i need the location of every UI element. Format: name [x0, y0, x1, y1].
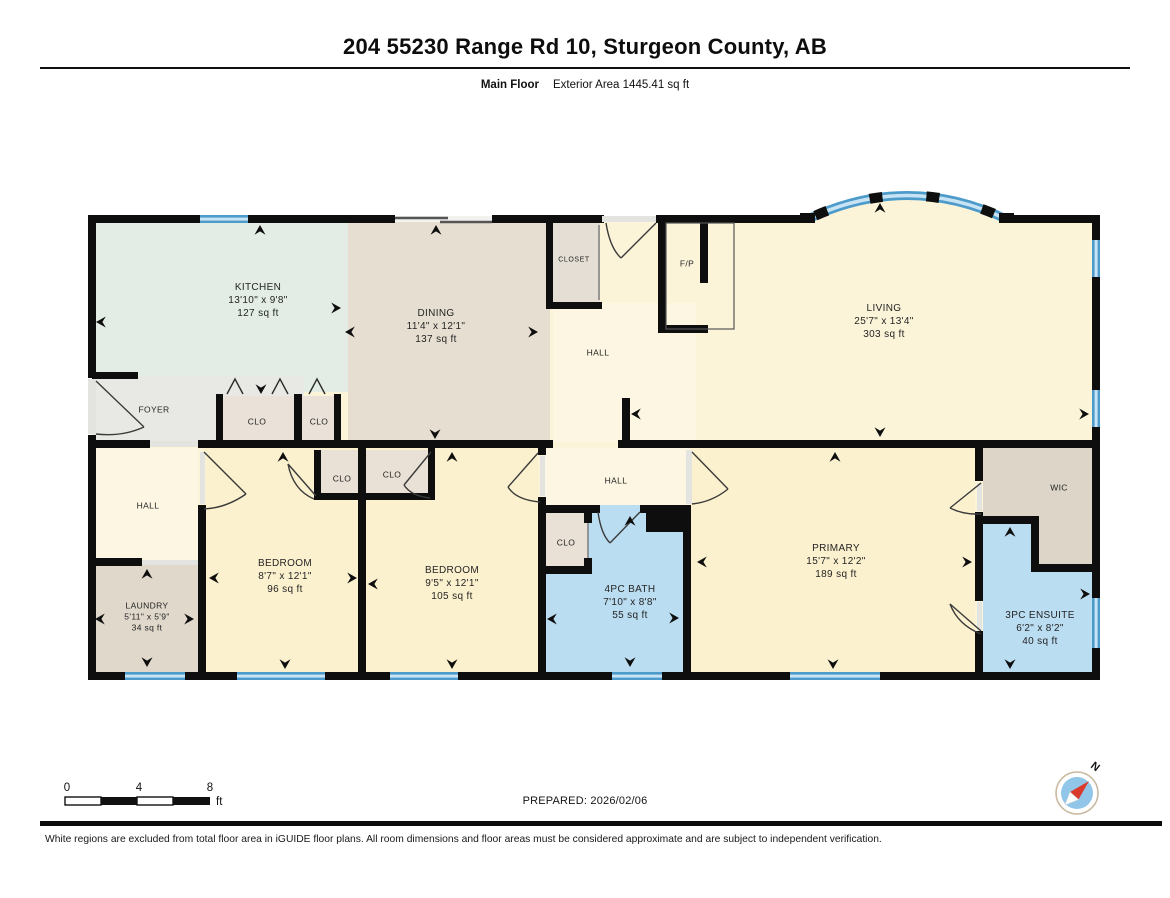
room-label-wic: WIC	[1050, 483, 1068, 494]
room-label-clo-foyer2: CLO	[310, 417, 329, 428]
room-label-foyer: FOYER	[138, 405, 169, 416]
room-label-living: LIVING25'7" x 13'4"303 sq ft	[854, 303, 913, 341]
room-label-closet: CLOSET	[558, 257, 590, 266]
disclaimer-text: White regions are excluded from total fl…	[45, 834, 882, 845]
prepared-date: PREPARED: 2026/02/06	[0, 795, 1170, 807]
scale-tick-4: 4	[136, 782, 142, 794]
room-label-clo-bed1: CLO	[333, 474, 352, 485]
room-label-bath: 4PC BATH7'10" x 8'8"55 sq ft	[603, 584, 656, 622]
room-label-laundry: LAUNDRY5'11" x 5'9"34 sq ft	[124, 601, 169, 634]
room-label-hall-upper: HALL	[587, 348, 610, 359]
room-label-bedroom2: BEDROOM9'5" x 12'1"105 sq ft	[425, 565, 479, 603]
room-label-hall-middle: HALL	[605, 476, 628, 487]
scale-tick-8: 8	[207, 782, 213, 794]
room-label-bedroom1: BEDROOM8'7" x 12'1"96 sq ft	[258, 558, 312, 596]
floorplan-page: 204 55230 Range Rd 10, Sturgeon County, …	[0, 0, 1170, 898]
room-label-clo-bed2: CLO	[383, 470, 402, 481]
room-label-primary: PRIMARY15'7" x 12'2"189 sq ft	[806, 543, 865, 581]
room-labels-layer: KITCHEN13'10" x 9'8"127 sq ft DINING11'4…	[0, 0, 1170, 898]
room-label-dining: DINING11'4" x 12'1"137 sq ft	[407, 308, 466, 346]
room-label-fireplace: F/P	[680, 259, 694, 270]
room-label-ensuite: 3PC ENSUITE6'2" x 8'2"40 sq ft	[1005, 610, 1074, 648]
room-label-hall-lower: HALL	[137, 501, 160, 512]
room-label-clo-bath: CLO	[557, 538, 576, 549]
scale-tick-0: 0	[64, 782, 70, 794]
room-label-clo-foyer1: CLO	[248, 417, 267, 428]
room-label-kitchen: KITCHEN13'10" x 9'8"127 sq ft	[228, 282, 287, 320]
footer-rule	[40, 821, 1162, 826]
